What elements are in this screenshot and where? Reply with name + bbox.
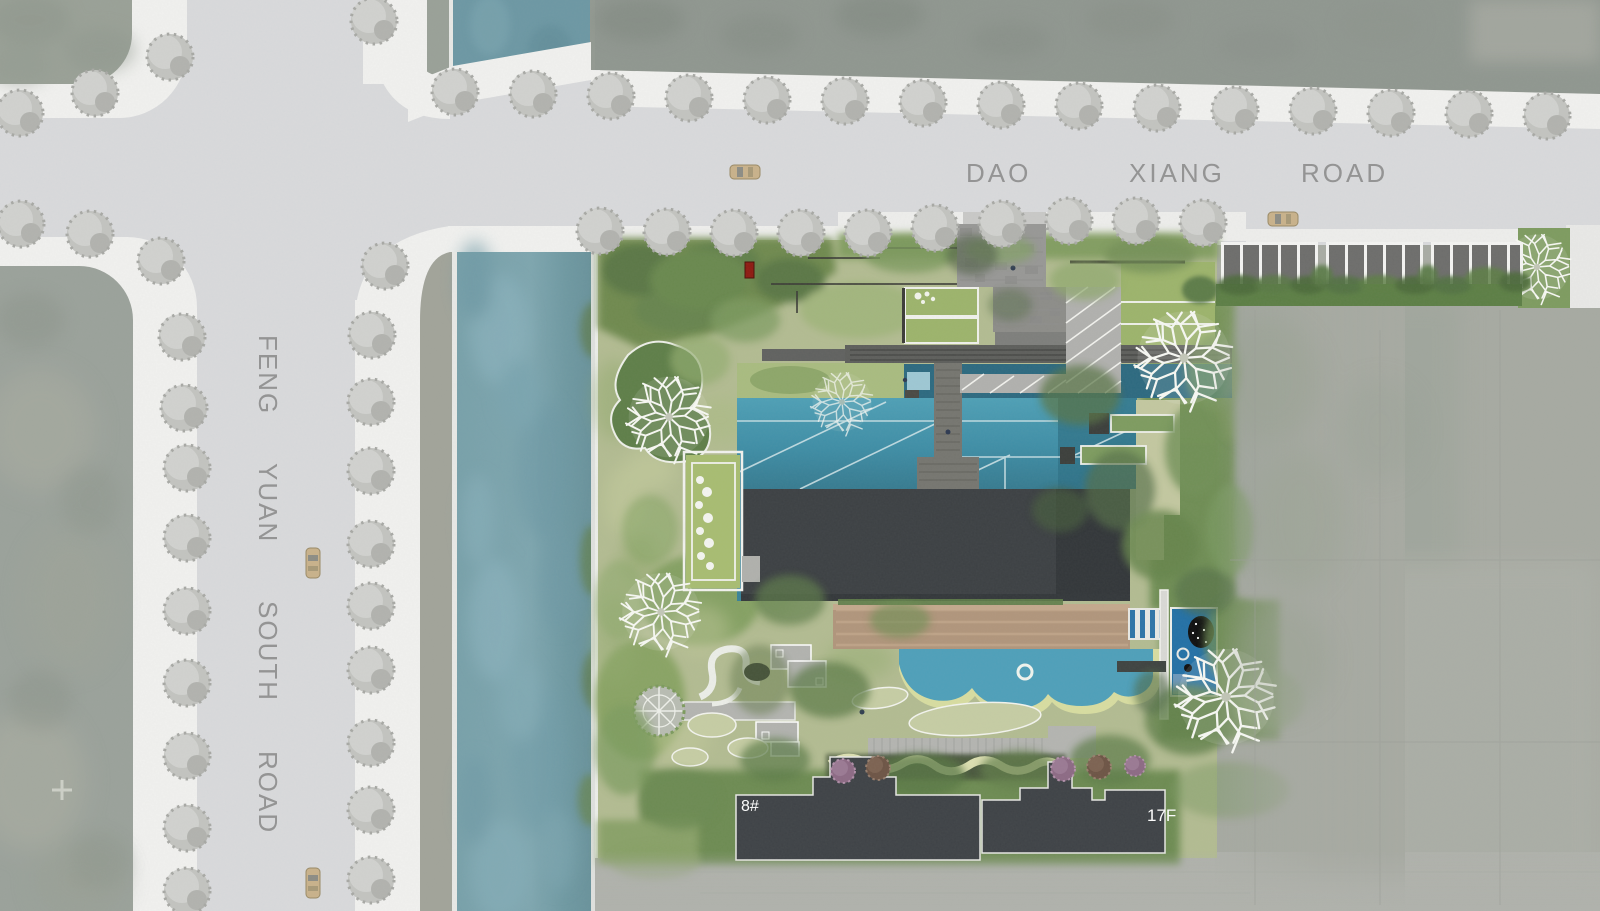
- svg-text:ROAD: ROAD: [1301, 158, 1388, 188]
- svg-text:SOUTH: SOUTH: [253, 601, 283, 702]
- svg-text:ROAD: ROAD: [253, 751, 283, 834]
- svg-text:DAO: DAO: [966, 158, 1031, 188]
- svg-text:YUAN: YUAN: [253, 463, 283, 543]
- svg-text:XIANG: XIANG: [1129, 158, 1225, 188]
- svg-text:FENG: FENG: [253, 335, 283, 415]
